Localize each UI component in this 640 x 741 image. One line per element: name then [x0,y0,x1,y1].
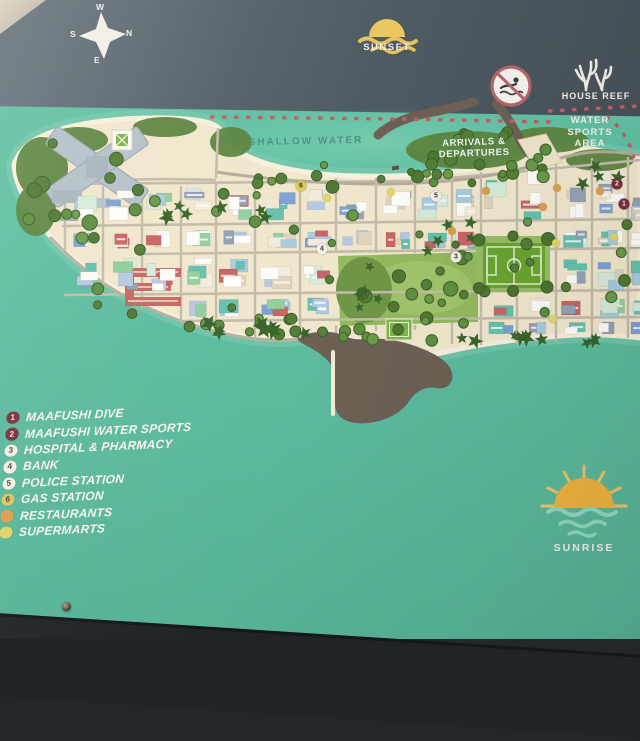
legend-marker-supermart [0,526,12,539]
compass-rose: W N S E [58,2,150,78]
no-swimming-icon [489,64,533,113]
map-marker-5: 5 [431,191,442,202]
restaurant-dot [553,184,561,192]
supermart-dot [387,188,395,196]
legend-marker-6: 6 [1,493,14,506]
legend-marker-restaurant [0,510,13,523]
map-marker-1: 1 [619,199,630,210]
compass-s: S [70,29,76,39]
legend-marker-3: 3 [4,444,17,457]
legend-marker-5: 5 [2,477,15,490]
sign-bolt [62,602,71,611]
supermart-dot [549,315,557,323]
supermart-dot [610,233,618,241]
compass-n: N [126,28,132,38]
map-marker-2: 2 [612,179,623,190]
arrivals-departures-label: ARRIVALS & DEPARTURES [413,135,536,161]
compass-e: E [94,55,100,65]
legend-marker-1: 1 [6,411,19,424]
map-marker-4: 4 [317,244,328,255]
sunrise-icon [536,460,632,549]
map-sign-board: W N S E SUNSET HOUSE REEF WATER SPORTS A… [0,0,640,639]
legend-marker-4: 4 [3,461,16,474]
restaurant-dot [482,187,490,195]
water-sports-area-label: WATER SPORTS AREA [553,115,627,150]
legend-marker-2: 2 [5,428,18,441]
restaurant-dot [448,227,456,235]
map-marker-6: 6 [296,181,307,192]
restaurant-dot [539,203,547,211]
supermart-dot [323,194,331,202]
sunrise-label: SUNRISE [538,542,630,554]
map-legend: 1MAAFUSHI DIVE 2MAAFUSHI WATER SPORTS 3H… [0,402,193,541]
compass-w: W [96,2,104,12]
supermart-dot [552,239,560,247]
house-reef-label: HOUSE REEF [556,91,636,101]
map-marker-3: 3 [451,252,462,263]
compass-star-icon [58,2,150,78]
restaurant-dot [596,187,604,195]
sunset-label: SUNSET [352,42,422,53]
